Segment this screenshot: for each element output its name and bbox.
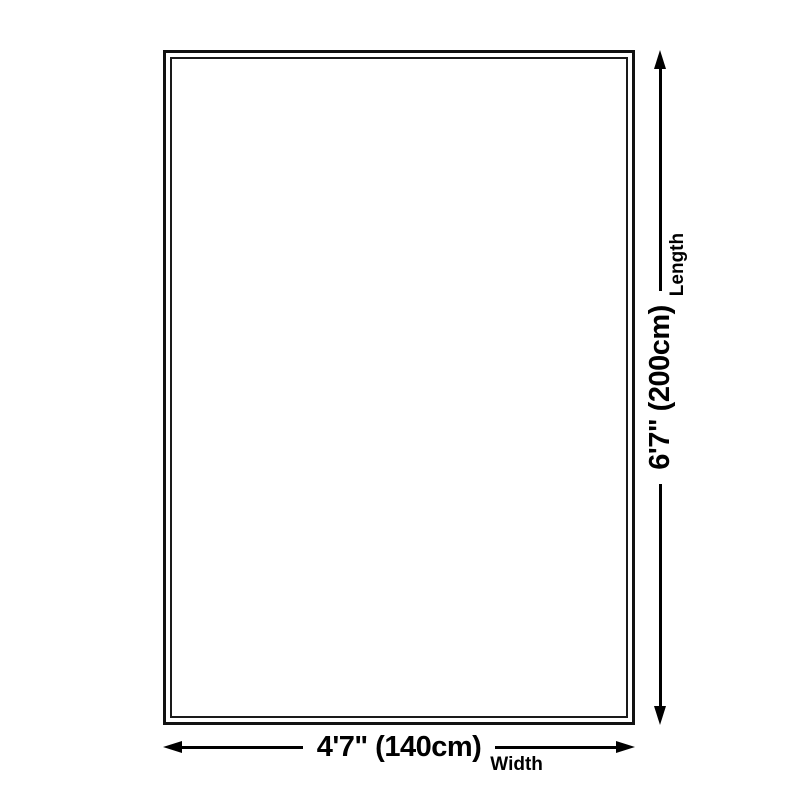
rug-dimension-diagram: 4'7" (140cm) Width 6'7" (200cm) Length [0,0,800,800]
rug-inner-border [170,57,628,718]
length-dimension-indicator: 6'7" (200cm) Length [645,50,675,725]
width-dimension-indicator: 4'7" (140cm) Width [163,732,635,762]
length-dimension-value: 6'7" (200cm) [645,291,675,484]
width-label: Width [490,755,543,774]
arrow-right-icon [616,741,635,753]
arrow-up-icon [654,50,666,69]
length-dimension-line-bottom [659,484,662,706]
width-dimension-line-right: Width [495,746,616,749]
length-label: Length [668,233,687,296]
width-dimension-value: 4'7" (140cm) [303,732,496,762]
arrow-down-icon [654,706,666,725]
arrow-left-icon [163,741,182,753]
width-dimension-line-left [182,746,303,749]
rug-outline [163,50,635,725]
length-dimension-line-top: Length [659,69,662,291]
